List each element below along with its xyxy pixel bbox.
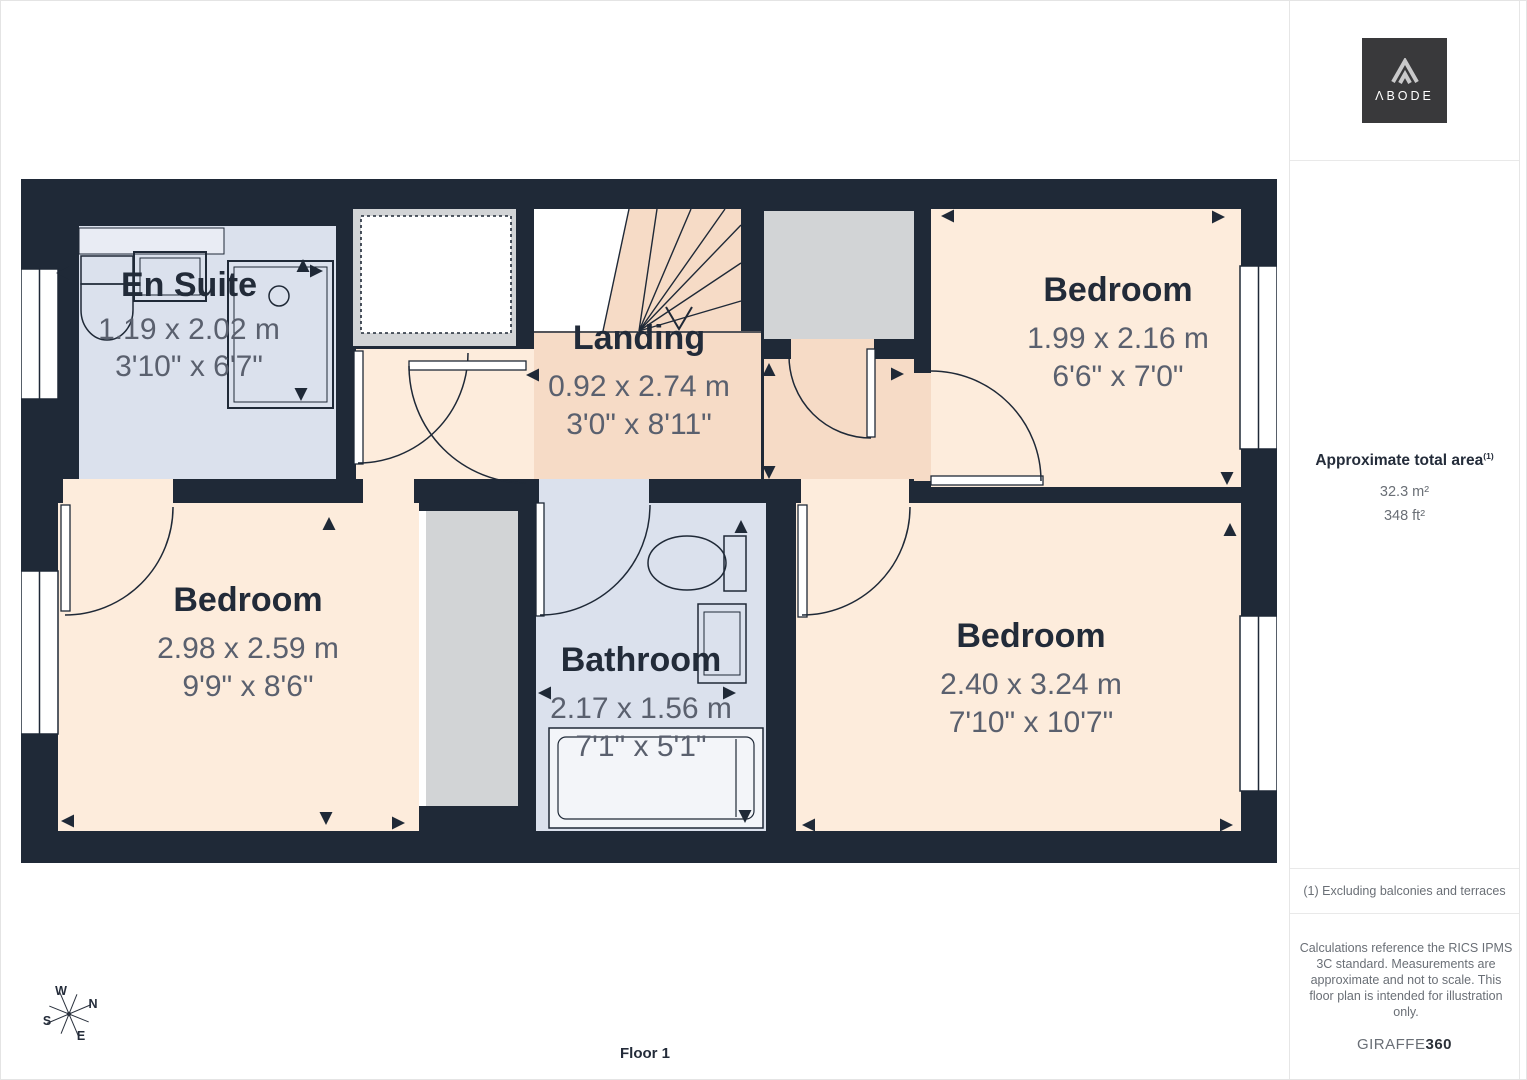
- sink-counter-icon: [79, 228, 224, 254]
- room-name: Bathroom: [561, 641, 722, 679]
- room-name: Bedroom: [173, 581, 322, 619]
- compass-north-label: N: [88, 997, 97, 1011]
- bedroom-br-floor: [796, 503, 1241, 831]
- logo-wordmark: ΛBODE: [1375, 89, 1434, 103]
- bedroom-bl-floor: [58, 503, 419, 831]
- room-dimensions-imperial: 3'0" x 8'11": [566, 408, 712, 441]
- void-dashed-box: [361, 216, 511, 333]
- room-dimensions-imperial: 3'10" x 6'7": [115, 350, 263, 383]
- total-area-section: Approximate total area(1) 32.3 m² 348 ft…: [1290, 161, 1519, 869]
- compass-west-label: W: [55, 984, 67, 998]
- room-dimensions-metric: 1.19 x 2.02 m: [98, 313, 280, 346]
- door-leaf: [798, 505, 807, 617]
- disclaimer-section: Calculations reference the RICS IPMS 3C …: [1290, 914, 1519, 1053]
- compass-east-label: E: [77, 1029, 85, 1043]
- room-dimensions-imperial: 7'1" x 5'1": [575, 730, 706, 763]
- abode-logo: ΛBODE: [1362, 38, 1447, 123]
- closet-door-opening: [791, 339, 874, 361]
- credit-name: GIRAFFE: [1357, 1036, 1426, 1053]
- door-leaf: [931, 476, 1043, 485]
- hall-opening: [363, 479, 414, 503]
- floor-label: Floor 1: [1, 1045, 1289, 1062]
- bedroom-tr-door-opening: [914, 373, 931, 481]
- floorplan-main-area: En Suite 1.19 x 2.02 m 3'10" x 6'7" Land…: [1, 1, 1289, 1079]
- floorplan-page: En Suite 1.19 x 2.02 m 3'10" x 6'7" Land…: [0, 0, 1527, 1080]
- footnote-section: (1) Excluding balconies and terraces: [1290, 869, 1519, 914]
- room-dimensions-metric: 2.40 x 3.24 m: [940, 668, 1122, 701]
- area-heading-text: Approximate total area: [1315, 452, 1483, 469]
- door-leaf: [61, 505, 70, 611]
- credit-number: 360: [1425, 1036, 1452, 1053]
- area-metric-value: 32.3 m²: [1290, 480, 1519, 504]
- bathroom-door-opening: [539, 479, 649, 503]
- logo-section: ΛBODE: [1290, 1, 1519, 161]
- room-name: En Suite: [121, 266, 257, 304]
- room-dimensions-imperial: 7'10" x 10'7": [949, 706, 1114, 739]
- disclaimer-text: Calculations reference the RICS IPMS 3C …: [1298, 940, 1514, 1020]
- room-dimensions-imperial: 6'6" x 7'0": [1052, 360, 1183, 393]
- bedroom-br-door-opening: [801, 479, 909, 503]
- footnote-text: (1) Excluding balconies and terraces: [1303, 884, 1505, 898]
- room-name: Bedroom: [1043, 271, 1192, 309]
- area-heading: Approximate total area(1): [1290, 451, 1519, 470]
- door-leaf: [867, 349, 875, 437]
- door-leaf: [409, 361, 526, 370]
- info-sidebar: ΛBODE Approximate total area(1) 32.3 m² …: [1289, 1, 1520, 1079]
- abode-mountain-icon: [1388, 58, 1422, 84]
- room-dimensions-metric: 1.99 x 2.16 m: [1027, 322, 1209, 355]
- room-dimensions-metric: 2.17 x 1.56 m: [550, 692, 732, 725]
- floor-plan: En Suite 1.19 x 2.02 m 3'10" x 6'7" Land…: [21, 179, 1277, 863]
- shaft-strip: [419, 511, 426, 806]
- giraffe360-credit: GIRAFFE360: [1298, 1036, 1511, 1053]
- room-name: Landing: [573, 319, 705, 357]
- door-leaf: [354, 351, 363, 464]
- room-name: Bedroom: [956, 617, 1105, 655]
- storage-closet-floor: [764, 211, 914, 339]
- room-dimensions-metric: 2.98 x 2.59 m: [157, 632, 339, 665]
- room-dimensions-metric: 0.92 x 2.74 m: [548, 370, 730, 403]
- area-imperial-value: 348 ft²: [1290, 504, 1519, 528]
- room-dimensions-imperial: 9'9" x 8'6": [182, 670, 313, 703]
- compass-south-label: S: [43, 1014, 51, 1028]
- ensuite-door-opening: [63, 479, 173, 503]
- footnote-marker: (1): [1483, 451, 1493, 461]
- shaft-floor: [426, 511, 518, 806]
- door-leaf: [536, 503, 544, 616]
